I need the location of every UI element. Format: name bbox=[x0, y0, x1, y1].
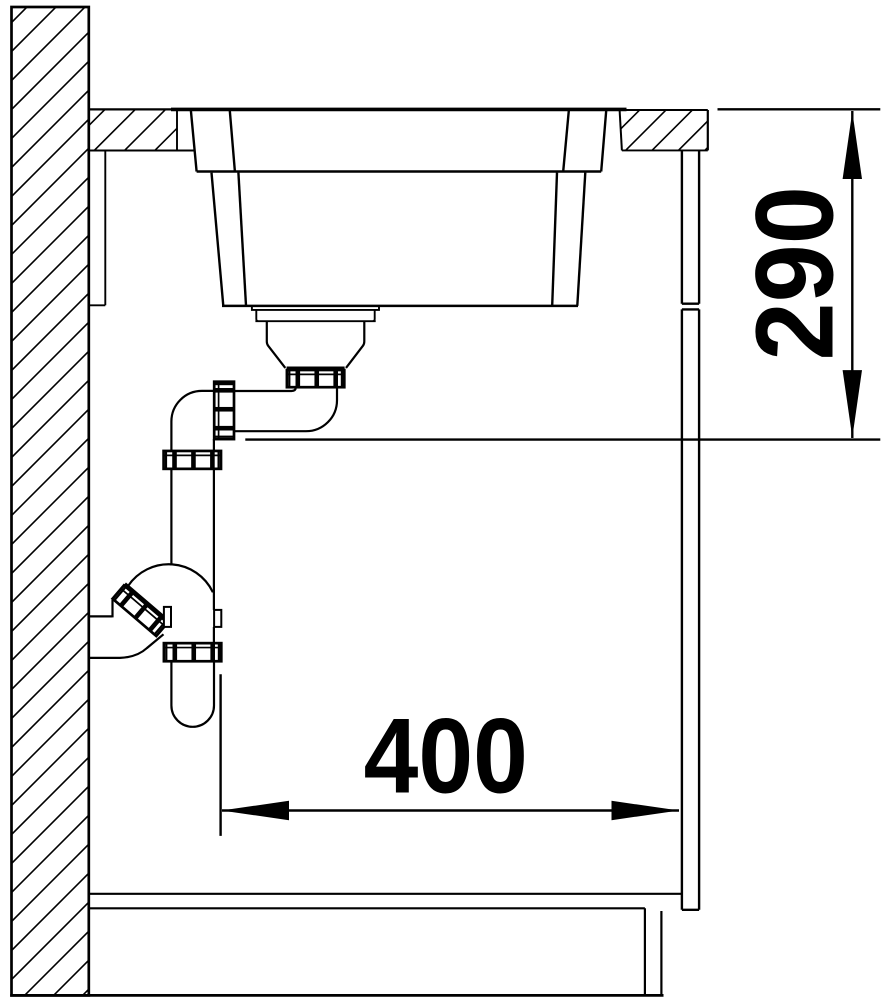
svg-text:400: 400 bbox=[364, 696, 528, 816]
svg-text:290: 290 bbox=[733, 186, 856, 360]
